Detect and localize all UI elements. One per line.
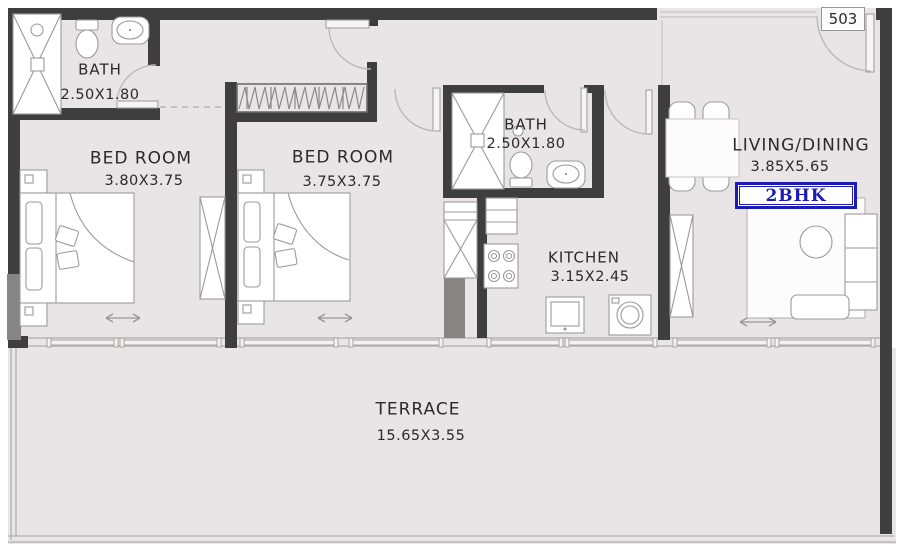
tv-unit-icon	[670, 215, 693, 317]
sofa-icon	[747, 198, 877, 319]
bath2-label: BATH	[504, 118, 548, 133]
coffee-table-icon	[800, 226, 832, 258]
toilet-icon	[76, 20, 98, 58]
bath2-dims: 2.50X1.80	[486, 137, 565, 152]
bedroom2-label: BED ROOM	[292, 150, 394, 167]
bath1-label: BATH	[78, 63, 122, 78]
duct-shaft-kitchen	[444, 278, 465, 338]
bath1-wall-right	[148, 8, 160, 66]
terrace-label: TERRACE	[375, 402, 460, 419]
floor-plan: BATH 2.50X1.80 BED ROOM 3.80X3.75 BED RO…	[0, 0, 900, 552]
wardrobe-wall-bottom	[225, 112, 377, 122]
kitchen-dims: 3.15X2.45	[550, 270, 629, 285]
wardrobe-icon	[444, 202, 477, 278]
double-bed-icon	[20, 193, 134, 303]
outer-wall-top	[8, 8, 657, 20]
toilet-icon	[510, 152, 532, 187]
washing-machine-icon	[609, 295, 651, 335]
bedroom2-dims: 3.75X3.75	[302, 175, 381, 190]
unit-type-label: 2BHK	[739, 186, 853, 205]
terrace-dims: 15.65X3.55	[377, 429, 466, 444]
duct-shaft-left	[7, 274, 21, 340]
double-bed-icon	[238, 193, 350, 301]
kitchen-counter-icon	[486, 198, 517, 234]
living-dims: 3.85X5.65	[750, 160, 829, 175]
bath2-wall-right	[592, 85, 604, 195]
shower-icon	[13, 14, 61, 114]
living-label: LIVING/DINING	[732, 138, 869, 155]
bedroom1-dims: 3.80X3.75	[104, 174, 183, 189]
bath2-wall-top	[443, 85, 544, 93]
kitchen-label: KITCHEN	[548, 251, 620, 266]
bedroom1-label: BED ROOM	[90, 151, 192, 168]
floor-plan-drawing	[0, 0, 900, 552]
washbasin-icon	[547, 161, 585, 188]
unit-number-plate: 503	[821, 7, 865, 31]
bath1-dims: 2.50X1.80	[60, 88, 139, 103]
wardrobe-hatch-icon	[237, 84, 367, 112]
washbasin-icon	[112, 17, 149, 44]
kitchen-sink-icon	[546, 297, 584, 333]
terrace-floor	[8, 348, 896, 544]
dining-table-icon	[666, 119, 739, 177]
outer-wall-right	[880, 8, 892, 534]
dining-set-icon	[666, 102, 739, 191]
wardrobe-wall-right	[367, 62, 377, 122]
stove-icon	[484, 244, 518, 288]
unit-type-badge: 2BHK	[735, 182, 857, 209]
